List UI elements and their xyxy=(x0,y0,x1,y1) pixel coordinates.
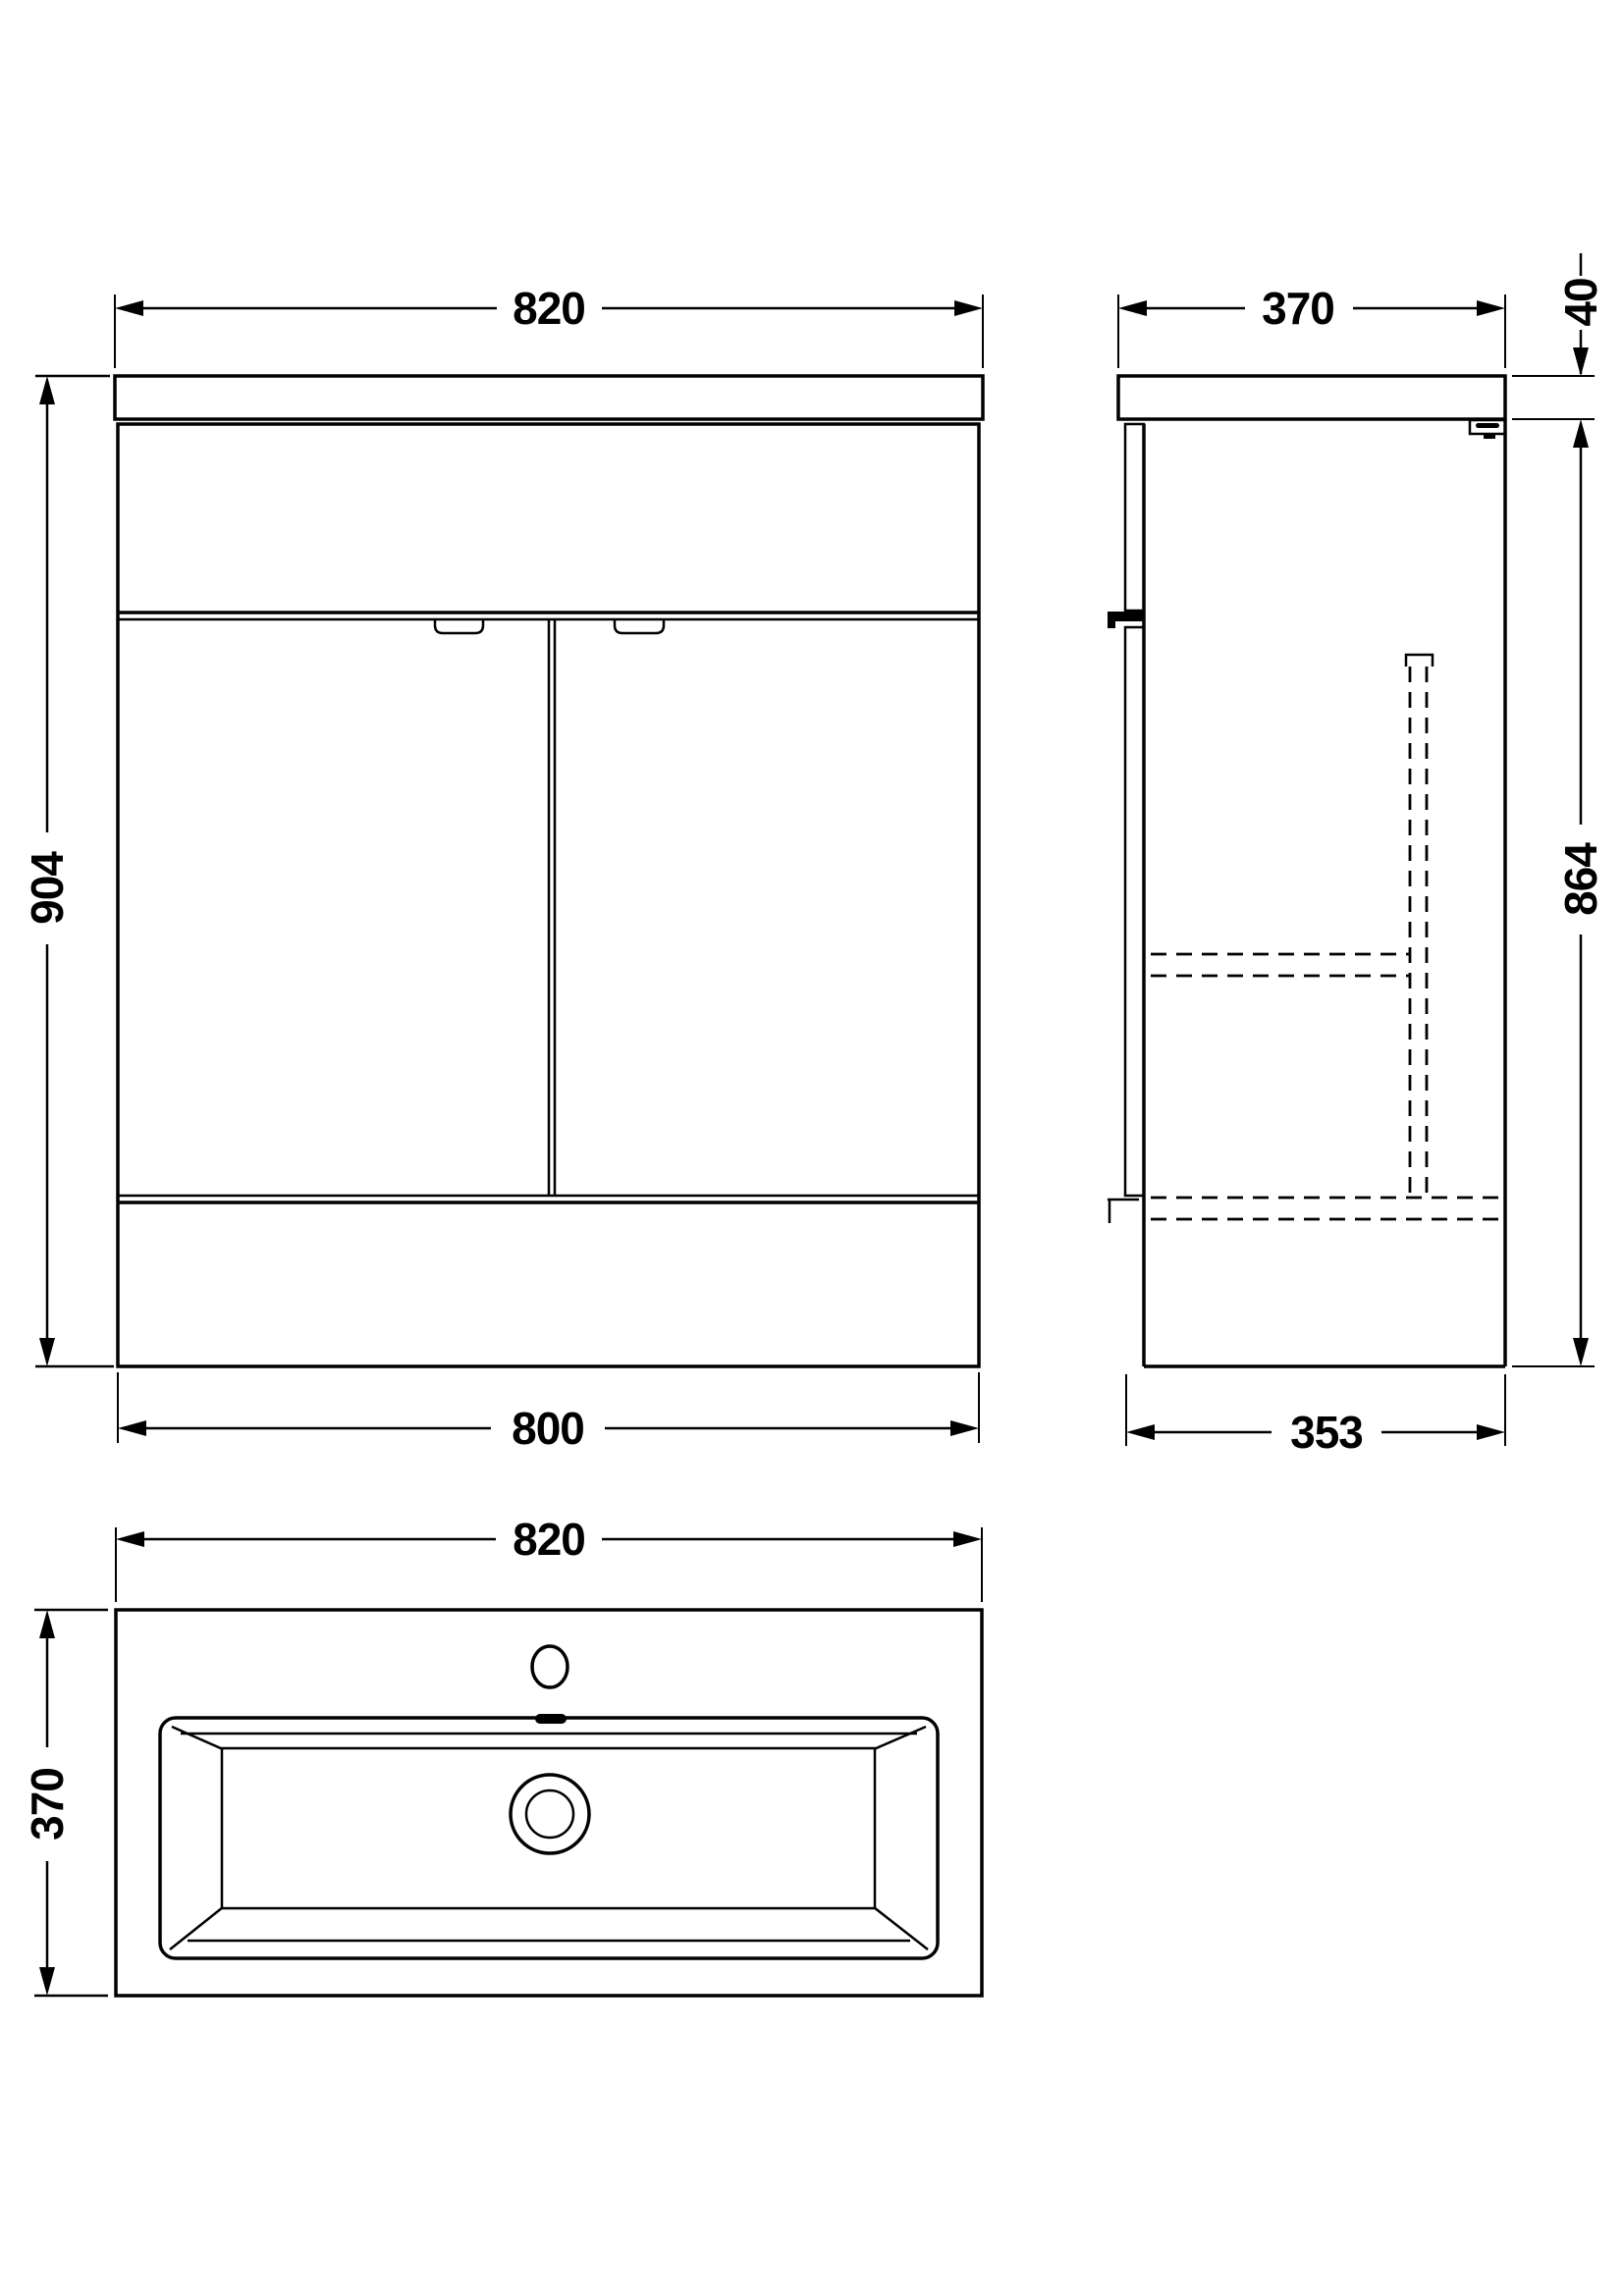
dimension-label: 820 xyxy=(513,283,585,334)
dimension-basin-width: 820 xyxy=(116,1514,982,1602)
arrowhead-down xyxy=(1573,347,1589,376)
dimension-side-depth-bottom: 353 xyxy=(1126,1374,1505,1458)
dimension-label: 370 xyxy=(1262,283,1334,334)
side-upper-panel-front xyxy=(1125,424,1144,611)
dimension-label: 864 xyxy=(1555,842,1606,916)
side-handle-profile xyxy=(1108,612,1145,628)
arrowhead-right xyxy=(1477,1424,1505,1440)
top-view xyxy=(116,1610,982,1996)
arrowhead-left xyxy=(116,1531,144,1547)
tap-hole xyxy=(532,1646,568,1687)
dimension-label: 370 xyxy=(22,1768,73,1841)
front-right-door-handle xyxy=(615,620,664,633)
waste-drain-outer xyxy=(511,1775,589,1853)
basin-bevel-top-left xyxy=(172,1727,223,1749)
arrowhead-left xyxy=(1126,1424,1155,1440)
side-door-front xyxy=(1125,627,1144,1196)
arrowhead-right xyxy=(1477,300,1505,316)
dimension-countertop-thickness: 40 xyxy=(1512,253,1606,419)
basin-bevel-bottom-right xyxy=(874,1907,928,1949)
dimension-label: 820 xyxy=(513,1514,585,1565)
front-countertop xyxy=(115,376,983,419)
arrowhead-right xyxy=(954,300,983,316)
dimension-front-width-top: 820 xyxy=(115,283,983,368)
technical-drawing-canvas: 820 904 800 xyxy=(0,0,1623,2296)
arrowhead-left xyxy=(118,1420,146,1436)
front-view xyxy=(115,376,983,1366)
dimension-basin-depth: 370 xyxy=(22,1610,108,1996)
waste-pipe-cap xyxy=(1406,655,1433,667)
basin-floor xyxy=(222,1748,875,1908)
dimension-label: 353 xyxy=(1290,1407,1363,1458)
bracket-tab xyxy=(1484,434,1495,439)
dimension-front-height: 904 xyxy=(22,376,114,1366)
side-view xyxy=(1108,376,1505,1366)
arrowhead-down xyxy=(39,1967,55,1996)
basin-bevel-top-right xyxy=(874,1727,926,1749)
dimension-label: 904 xyxy=(22,851,73,925)
arrowhead-up xyxy=(1573,419,1589,448)
wall-bracket-icon xyxy=(1470,420,1505,439)
arrowhead-down xyxy=(1573,1338,1589,1366)
technical-drawing-sheet: 820 904 800 xyxy=(0,0,1623,2296)
arrowhead-right xyxy=(953,1531,982,1547)
dimension-side-height: 864 xyxy=(1512,419,1606,1366)
waste-drain-inner xyxy=(526,1790,573,1838)
dimension-side-depth-top: 370 xyxy=(1118,283,1505,368)
overflow-slot xyxy=(535,1714,567,1724)
arrowhead-up xyxy=(39,376,55,404)
arrowhead-left xyxy=(1118,300,1147,316)
basin-outer-outline xyxy=(116,1610,982,1996)
arrowhead-right xyxy=(950,1420,979,1436)
arrowhead-down xyxy=(39,1338,55,1366)
dimension-label: 800 xyxy=(512,1403,584,1454)
basin-bevel-bottom-left xyxy=(170,1907,223,1949)
side-countertop xyxy=(1118,376,1505,419)
front-left-door-handle xyxy=(435,620,483,633)
dimension-label: 40 xyxy=(1555,278,1606,326)
bracket-slot xyxy=(1476,423,1499,428)
arrowhead-left xyxy=(115,300,143,316)
arrowhead-up xyxy=(39,1610,55,1638)
dimension-front-width-bottom: 800 xyxy=(118,1372,979,1454)
